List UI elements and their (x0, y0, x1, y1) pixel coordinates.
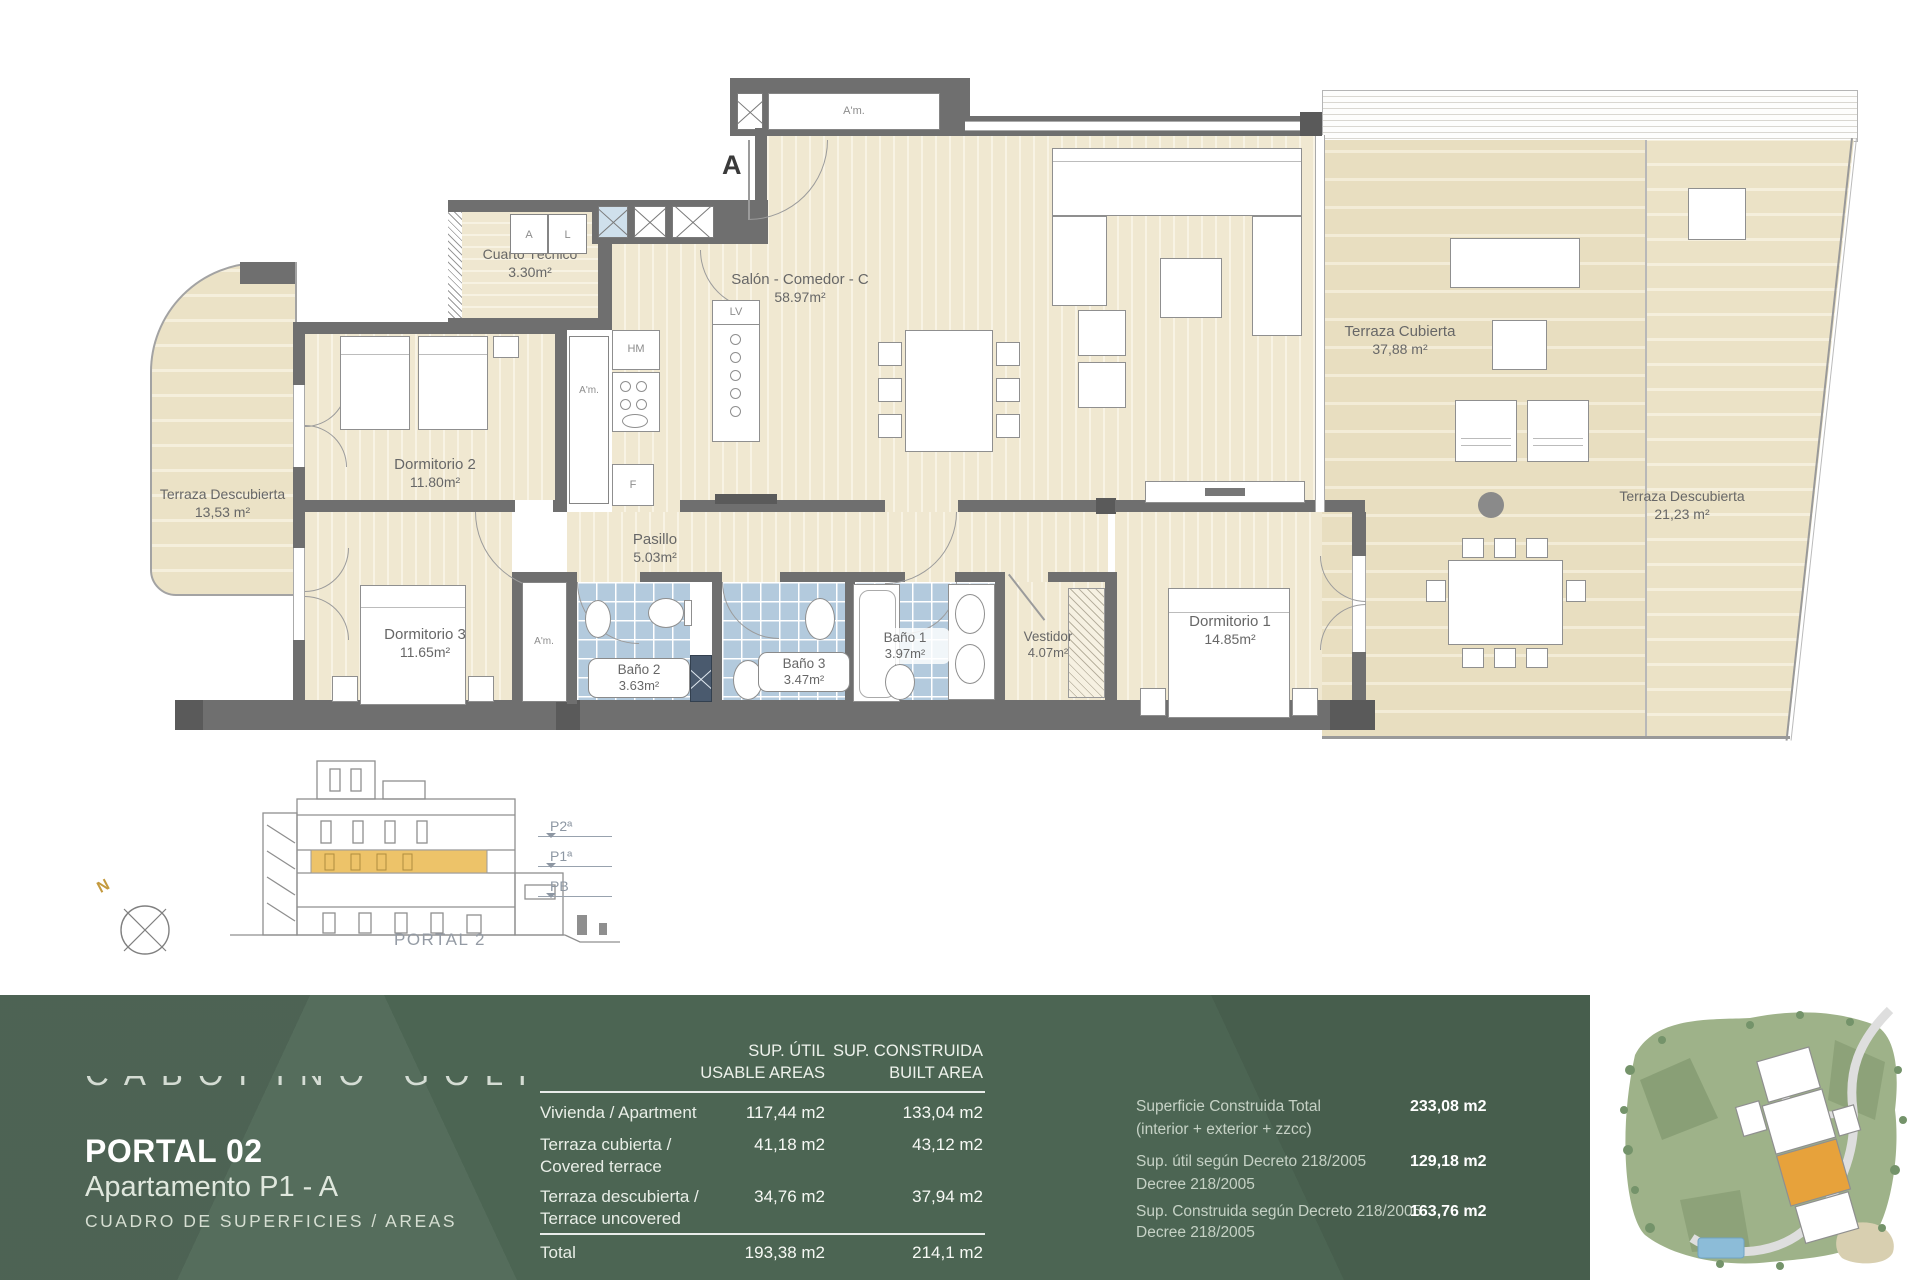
table-row-useful: 41,18 m2 (705, 1135, 825, 1155)
room-label-pasillo: Pasillo 5.03m² (600, 530, 710, 567)
window-band-top (965, 121, 1310, 131)
chair (1462, 538, 1484, 558)
hall-closet (569, 336, 609, 504)
chair (996, 342, 1020, 366)
room-label-bano2: Baño 2 3.63m² (588, 658, 690, 698)
terrace-left-floor (150, 262, 297, 596)
level-label-p2: P2ª (538, 818, 612, 837)
pillar (175, 700, 203, 730)
site-plan-panel (1590, 995, 1920, 1280)
wall-bottom (175, 700, 1115, 730)
kitchen-sink (622, 414, 648, 428)
terrace-table (1688, 188, 1746, 240)
table-row-built: 43,12 m2 (863, 1135, 983, 1155)
sink-dot (730, 352, 741, 363)
chair (1566, 580, 1586, 602)
wall-hall-top (680, 500, 885, 512)
table-row-built: 133,04 m2 (863, 1103, 983, 1123)
single-bed (340, 336, 410, 430)
table-row-label-2: Terrace uncovered (540, 1209, 681, 1229)
summary-label: Superficie Construida Total (1136, 1098, 1321, 1116)
table-total-useful: 193,38 m2 (705, 1243, 825, 1263)
room-label-terraza-cubierta: Terraza Cubierta 37,88 m² (1300, 322, 1500, 359)
table-total-built: 214,1 m2 (863, 1243, 983, 1263)
sink-dot (730, 406, 741, 417)
pergola-strip (1322, 90, 1858, 142)
burner-dot (620, 381, 631, 392)
room-label-terraza-izquierda: Terraza Descubierta 13,53 m² (150, 486, 295, 522)
single-bed (418, 336, 488, 430)
planter (1478, 492, 1504, 518)
chair (1494, 538, 1516, 558)
burner-dot (620, 399, 631, 410)
toilet (885, 664, 915, 700)
wall-segment (640, 572, 722, 582)
laundry-box: L (548, 214, 587, 254)
wall-segment (955, 572, 1000, 582)
dining-table (905, 330, 993, 452)
nightstand (332, 676, 358, 702)
wall-segment (780, 572, 845, 582)
toilet-tank (684, 600, 692, 626)
hall-closet-label: A'm. (567, 386, 611, 396)
wall-segment (448, 200, 598, 212)
table-row-built: 37,94 m2 (863, 1187, 983, 1207)
wall-segment (293, 322, 567, 334)
room-label-bano3: Baño 3 3.47m² (758, 652, 850, 692)
areas-caption: CUADRO DE SUPERFICIES / AREAS (85, 1211, 457, 1232)
toilet (648, 598, 684, 628)
sink-dot (730, 370, 741, 381)
nightstand (468, 676, 494, 702)
table-header-useful: SUP. ÚTIL USABLE AREAS (645, 1040, 825, 1084)
wall-stub (240, 262, 295, 284)
wall-segment (1105, 572, 1117, 704)
radiator (715, 494, 777, 504)
room-label-salon: Salón - Comedor - C 58.97m² (690, 270, 910, 307)
burner-dot (636, 381, 647, 392)
chair (878, 342, 902, 366)
room-label-dormitorio1: Dormitorio 1 14.85m² (1140, 612, 1320, 649)
door-opening (515, 500, 553, 512)
armchair (1078, 310, 1126, 356)
summary-value: 233,08 m2 (1410, 1098, 1487, 1116)
chair (996, 414, 1020, 438)
chair (878, 414, 902, 438)
summary-label: Sup. Construida según Decreto 218/2005 (1136, 1203, 1421, 1221)
nightstand (1292, 688, 1318, 716)
table-row-useful: 34,76 m2 (705, 1187, 825, 1207)
terrace-sideboard (1450, 238, 1580, 288)
stair-hatch (448, 212, 462, 318)
sofa (1052, 148, 1302, 216)
sun-lounger (1527, 400, 1589, 462)
terrace-table (1492, 320, 1547, 370)
room-label-dormitorio2: Dormitorio 2 11.80m² (330, 455, 540, 492)
sofa-side (1252, 216, 1302, 336)
table-rule-bottom (540, 1233, 985, 1235)
sun-lounger (1455, 400, 1517, 462)
portal-title: PORTAL 02 (85, 1133, 263, 1170)
elevator-shaft-icon (598, 206, 628, 238)
fridge-label: F (612, 480, 654, 491)
wall-segment (567, 572, 577, 704)
summary-label-2: Decree 218/2005 (1136, 1176, 1255, 1194)
summary-value: 129,18 m2 (1410, 1153, 1487, 1171)
summary-label: Sup. útil según Decreto 218/2005 (1136, 1153, 1366, 1171)
chair (996, 378, 1020, 402)
wall-hall-top (958, 500, 1098, 512)
room-label-dormitorio3: Dormitorio 3 11.65m² (330, 625, 520, 662)
table-row-useful: 117,44 m2 (705, 1103, 825, 1123)
apartment-subtitle: Apartamento P1 - A (85, 1171, 338, 1204)
pillar (1096, 498, 1116, 514)
entry-door-leaf (748, 140, 750, 220)
double-bed (1168, 588, 1290, 718)
washbasin (805, 598, 835, 640)
summary-label-2: (interior + exterior + zzcc) (1136, 1121, 1312, 1139)
bedroom3-closet-label: A'm. (520, 637, 568, 647)
burner-dot (636, 399, 647, 410)
entrance-letter: A (722, 150, 742, 181)
wall-segment (712, 572, 722, 704)
entry-closet-label: A'm. (768, 93, 940, 130)
armchair (1078, 362, 1126, 408)
outdoor-dining-table (1448, 560, 1563, 645)
room-label-terraza-derecha: Terraza Descubierta 21,23 m² (1592, 488, 1772, 524)
fireplace-marker (1205, 488, 1245, 496)
room-label-vestidor: Vestidor 4.07m² (998, 628, 1098, 662)
table-row-label: Terraza cubierta / (540, 1135, 671, 1155)
window-bedroom3 (293, 548, 305, 640)
pillar (1330, 700, 1375, 730)
pillar (1300, 112, 1322, 136)
chair (1426, 580, 1446, 602)
vent-shaft-icon (634, 206, 666, 238)
sink-dot (730, 388, 741, 399)
compass-icon (100, 878, 190, 973)
room-label-bano1: Baño 1 3.97m² (860, 628, 950, 664)
table-rule-top (540, 1091, 985, 1093)
chair (1526, 648, 1548, 668)
summary-value: 163,76 m2 (1410, 1203, 1487, 1221)
washbasin (955, 594, 985, 634)
chair (1462, 648, 1484, 668)
footer-band: CABOPINO GOLF PORTAL 02 Apartamento P1 -… (0, 995, 1590, 1280)
terrace-bottom-rail (1322, 736, 1790, 739)
chair (878, 378, 902, 402)
section-drawing: P2ª P1ª PB PORTAL 2 N (0, 750, 900, 995)
washbasin (585, 600, 611, 638)
chair (1494, 648, 1516, 668)
terrace-roof-edge (1645, 140, 1647, 738)
coffee-table (1160, 258, 1222, 318)
table-row-label: Vivienda / Apartment (540, 1103, 697, 1123)
table-row-label-2: Covered terrace (540, 1157, 662, 1177)
dishwasher-label: LV (712, 307, 760, 318)
pillar (556, 700, 580, 730)
wall-segment (555, 334, 567, 500)
table-header-built: SUP. CONSTRUIDA BUILT AREA (803, 1040, 983, 1084)
armario-label: A'm. (768, 93, 940, 130)
nightstand (1140, 688, 1166, 716)
vent-shaft-icon (672, 206, 714, 238)
level-label-pb: PB (538, 878, 612, 897)
chair (1526, 538, 1548, 558)
site-plan-map (1600, 1000, 1910, 1272)
wall-segment (1048, 572, 1105, 582)
oven-label: HM (612, 344, 660, 355)
washbasin (955, 644, 985, 684)
sofa-chaise (1052, 216, 1107, 306)
table-row-label: Terraza descubierta / (540, 1187, 699, 1207)
section-caption: PORTAL 2 (355, 930, 525, 950)
brochure-page: A'm. A Salón - Comedor - C 58.97m² Cuart… (0, 0, 1920, 1280)
window-bedroom2 (293, 385, 305, 467)
boiler-box: A (510, 214, 548, 254)
shaft-icon (737, 93, 763, 130)
table-total-label: Total (540, 1243, 576, 1263)
level-label-p1: P1ª (538, 848, 612, 867)
duct-shaft-icon (690, 655, 712, 702)
building-section-svg (225, 755, 625, 990)
nightstand (493, 336, 519, 358)
summary-label-2: Decree 218/2005 (1136, 1224, 1255, 1242)
wall-segment (598, 242, 612, 318)
sink-dot (730, 334, 741, 345)
